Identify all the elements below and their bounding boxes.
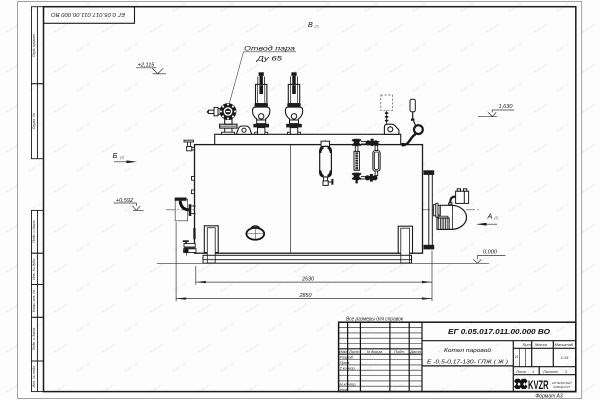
svg-text:1:15: 1:15	[561, 355, 570, 360]
svg-text:Котел паровой: Котел паровой	[444, 347, 491, 354]
svg-text:Масса: Масса	[535, 342, 548, 347]
svg-text:Н.контр.: Н.контр.	[340, 381, 357, 386]
svg-text:Листов: Листов	[542, 369, 558, 374]
svg-text:Разраб.: Разраб.	[340, 355, 354, 360]
svg-text:Лист: Лист	[515, 369, 527, 374]
svg-text:Все размеры для справок: Все размеры для справок	[346, 316, 404, 322]
svg-text:Отвод пара: Отвод пара	[244, 44, 296, 52]
svg-text:Т.контр.: Т.контр.	[340, 366, 356, 371]
svg-text:Справ. №: Справ. №	[32, 113, 36, 129]
svg-text:(2): (2)	[494, 216, 498, 220]
svg-text:Инв. № подл.: Инв. № подл.	[32, 365, 36, 387]
svg-text:Утв.: Утв.	[340, 387, 349, 392]
svg-text:Перв. примен.: Перв. примен.	[32, 33, 36, 57]
svg-text:ЕГ 0.05.017.011.00.000 ВО: ЕГ 0.05.017.011.00.000 ВО	[50, 11, 125, 17]
svg-text:Инв. № дубл.: Инв. № дубл.	[32, 258, 36, 280]
svg-text:N докум.: N докум.	[367, 349, 383, 354]
svg-text:А: А	[487, 212, 493, 221]
svg-text:И: И	[515, 354, 518, 359]
svg-text:Подп. и дата: Подп. и дата	[32, 221, 36, 244]
svg-text:В: В	[308, 20, 313, 29]
svg-text:(2): (2)	[315, 24, 319, 28]
svg-text:KVZR: KVZR	[528, 380, 549, 392]
svg-text:Масштаб: Масштаб	[555, 342, 574, 347]
svg-text:Лист: Лист	[348, 349, 360, 354]
svg-text:1,630: 1,630	[499, 104, 514, 110]
svg-text:1: 1	[532, 369, 534, 374]
svg-text:ЕГ 0.05.017.011.00.000 ВО: ЕГ 0.05.017.011.00.000 ВО	[448, 327, 550, 336]
svg-text:Пров.: Пров.	[340, 360, 351, 365]
svg-text:Взам. инв. №: Взам. инв. №	[32, 290, 36, 312]
svg-text:2630: 2630	[301, 277, 314, 283]
svg-text:(2): (2)	[120, 156, 124, 160]
svg-text:0,000: 0,000	[483, 250, 498, 256]
svg-text:Изм.: Изм.	[339, 349, 348, 354]
svg-text:Е -0,5-0,17-130- ГЛЖ ( Ж ): Е -0,5-0,17-130- ГЛЖ ( Ж )	[427, 360, 508, 366]
svg-text:Б: Б	[113, 151, 118, 160]
svg-text:Подп. и дата: Подп. и дата	[32, 328, 36, 351]
svg-text:2850: 2850	[299, 293, 312, 299]
svg-text:ЗАВОД РЭТ: ЗАВОД РЭТ	[553, 385, 572, 389]
svg-text:Лит.: Лит.	[522, 342, 532, 347]
svg-text:Формат А3: Формат А3	[535, 394, 563, 400]
svg-text:Подп.: Подп.	[394, 349, 405, 354]
svg-text:Ду 65: Ду 65	[255, 56, 282, 63]
svg-text:Дата: Дата	[409, 349, 421, 354]
